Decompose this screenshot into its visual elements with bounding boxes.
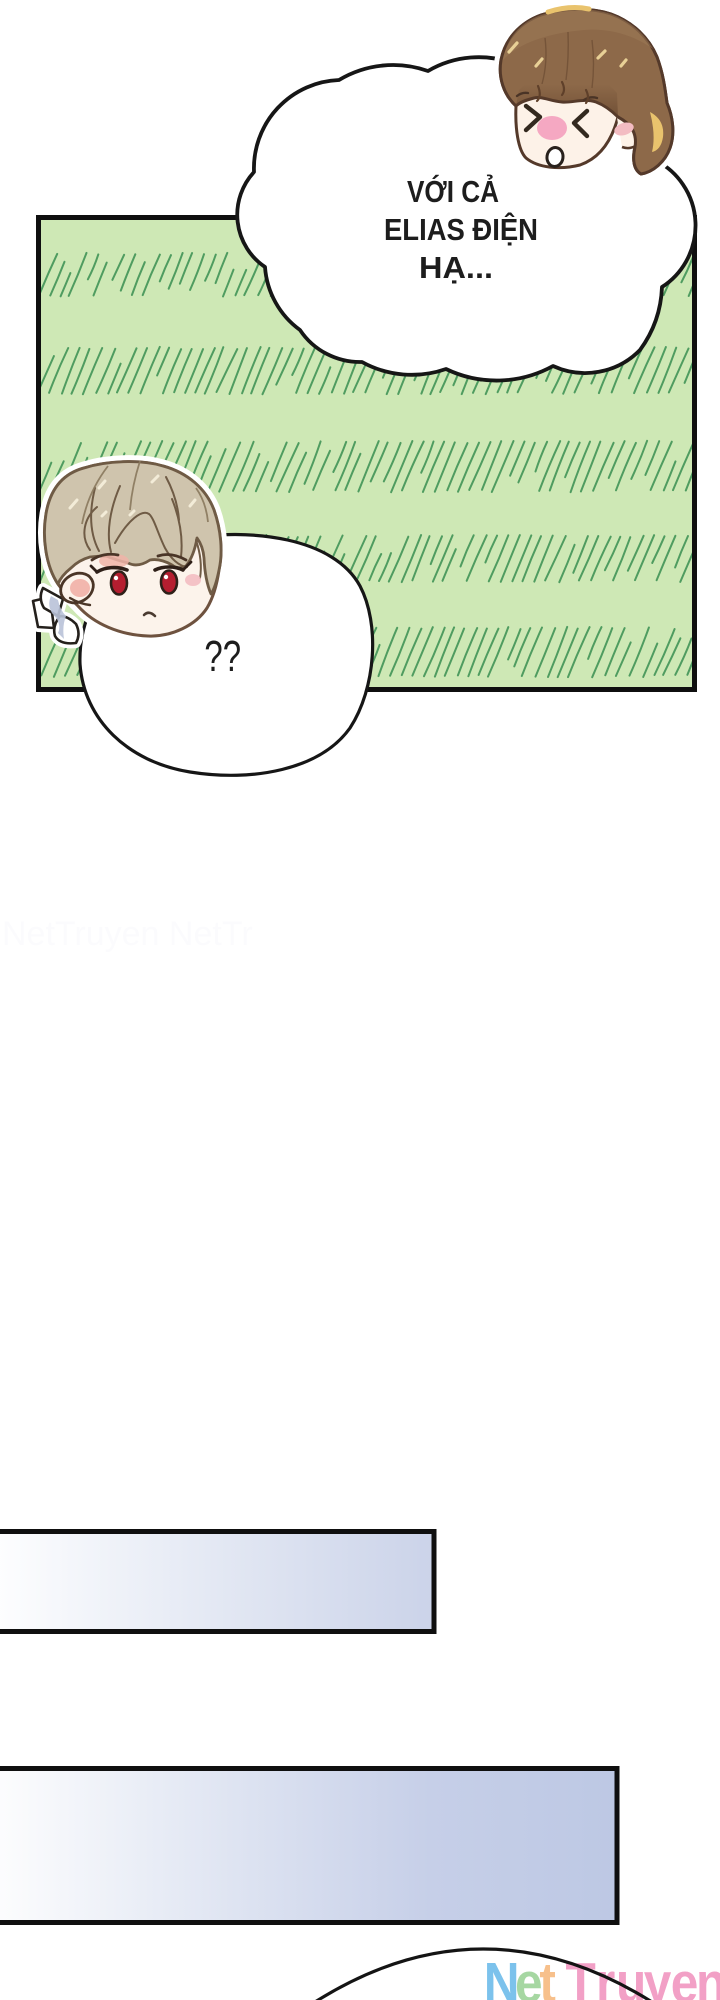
svg-text:e: e <box>515 1952 543 2000</box>
svg-text:N: N <box>484 1952 520 2000</box>
svg-text:y: y <box>644 1952 672 2000</box>
svg-text:??: ?? <box>204 633 241 682</box>
svg-text:ELIAS ĐIỆN: ELIAS ĐIỆN <box>384 211 538 247</box>
svg-text:T: T <box>566 1952 597 2000</box>
svg-text:HẠ...: HẠ... <box>419 250 493 285</box>
svg-text:NetTruyen NetTr: NetTruyen NetTr <box>2 915 253 953</box>
svg-text:u: u <box>616 1952 646 2000</box>
svg-text:e: e <box>671 1952 699 2000</box>
svg-text:n: n <box>696 1952 720 2000</box>
svg-text:VỚI CẢ: VỚI CẢ <box>407 173 499 209</box>
